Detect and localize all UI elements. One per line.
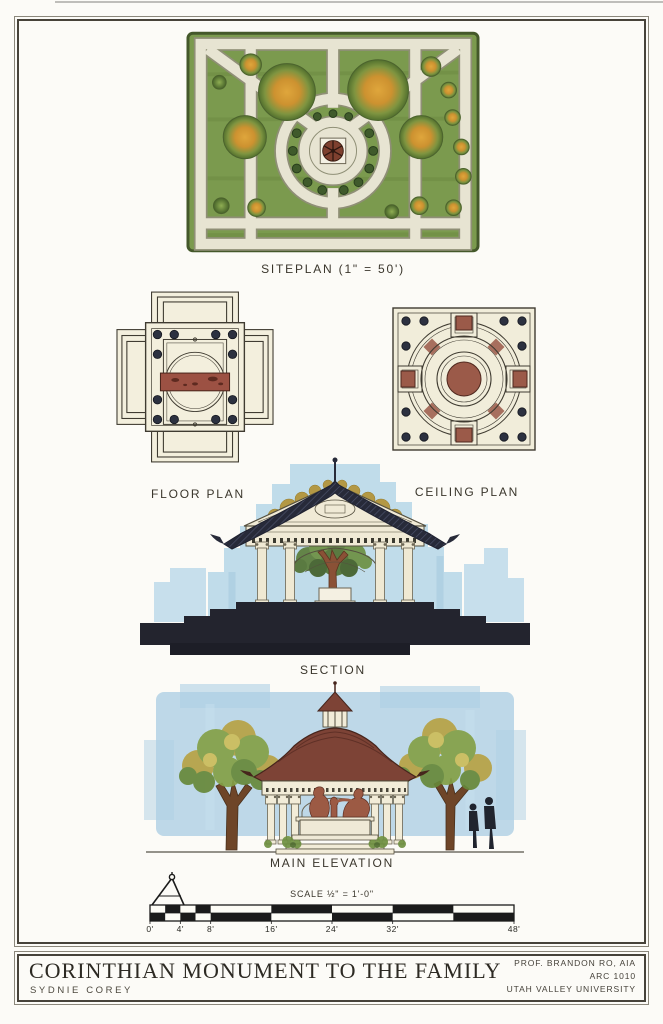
scale-tick: 8' [207,924,214,934]
statue-base-plan [160,373,229,391]
scale-tick: 32' [386,924,399,934]
credit-line: UTAH VALLEY UNIVERSITY [507,983,636,996]
floor-plan-drawing [116,290,274,464]
site-plan-label: SITEPLAN (1" = 50') [261,262,405,276]
compass-icon [152,872,184,905]
floor-plan-label: FLOOR PLAN [151,487,245,501]
drawing-sheet: SITEPLAN (1" = 50') FLOOR PLAN CEILING P… [0,0,663,1024]
section-drawing [140,452,530,664]
ceiling-plan-drawing [391,306,537,452]
scale-tick: 16' [265,924,278,934]
scale-label: SCALE ½" = 1'-0" [290,889,374,899]
scale-tick: 48' [508,924,521,934]
site-plan-drawing [186,30,480,258]
credit-line: ARC 1010 [507,970,636,983]
scale-bar-ticks: 0' 4' 8' 16' 24' 32' 48' [150,924,514,936]
scale-tick: 4' [177,924,184,934]
scan-edge-line [55,1,663,3]
elevation-dentils [264,788,406,792]
ceiling-oculus [447,362,481,396]
dentil-band [250,538,420,543]
credit-line: PROF. BRANDON RO, AIA [507,957,636,970]
scale-bar-checker [150,905,514,924]
elevation-label: MAIN ELEVATION [270,856,394,870]
sheet-author: SYDNIE COREY [30,985,133,996]
scale-tick: 24' [326,924,339,934]
sheet-title: CORINTHIAN MONUMENT TO THE FAMILY [29,958,501,984]
sheet-credits: PROF. BRANDON RO, AIA ARC 1010 UTAH VALL… [507,957,636,996]
scale-tick: 0' [146,924,153,934]
section-label: SECTION [300,663,366,677]
site-monument [320,138,345,163]
title-block: CORINTHIAN MONUMENT TO THE FAMILY SYDNIE… [14,951,649,1005]
ceiling-plan-label: CEILING PLAN [415,485,519,499]
elevation-drawing [140,680,530,858]
